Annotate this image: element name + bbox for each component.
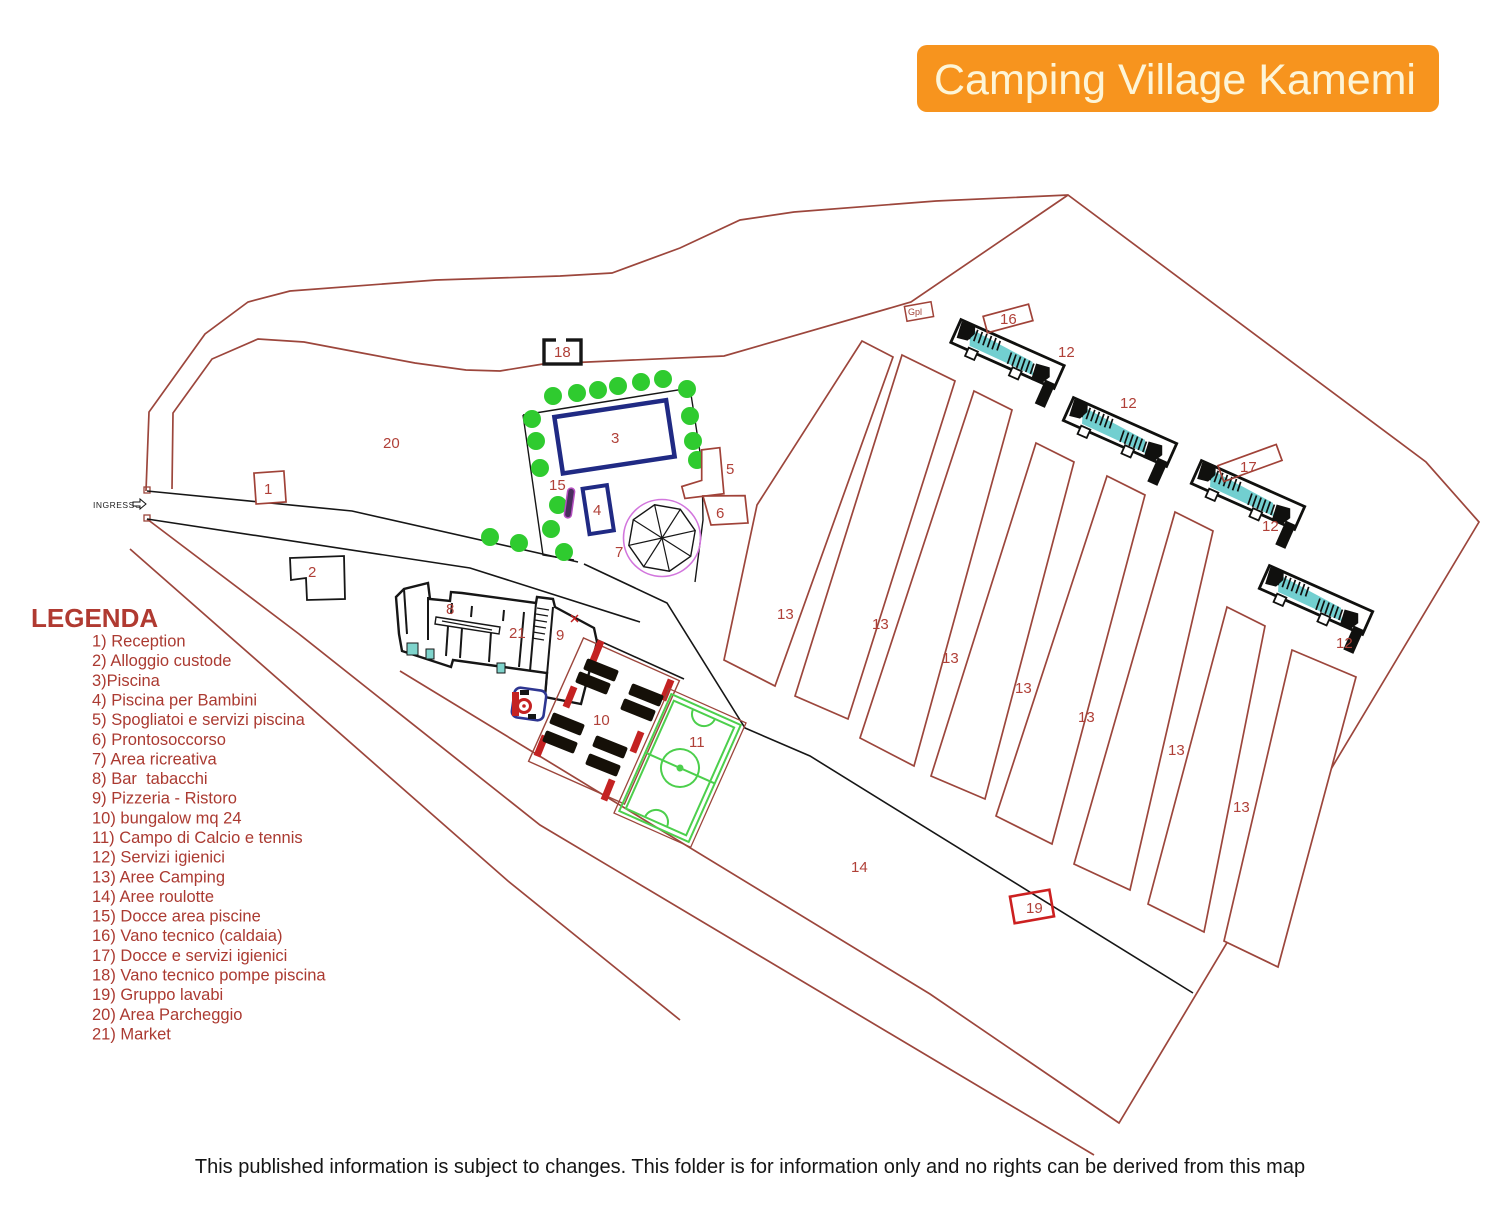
svg-text:21) Market: 21) Market	[92, 1026, 171, 1044]
svg-text:12: 12	[1262, 518, 1279, 535]
svg-text:12) Servizi igienici: 12) Servizi igienici	[92, 849, 225, 867]
svg-text:1: 1	[264, 481, 272, 498]
svg-text:8) Bar tabacchi: 8) Bar tabacchi	[92, 770, 208, 788]
svg-text:17) Docce e servizi igienici: 17) Docce e servizi igienici	[92, 947, 287, 965]
svg-text:This published information is: This published information is subject to…	[195, 1156, 1305, 1178]
svg-text:11: 11	[689, 734, 705, 751]
svg-text:13: 13	[1078, 709, 1095, 726]
svg-text:15: 15	[549, 477, 566, 494]
svg-text:20: 20	[383, 435, 400, 452]
svg-text:7: 7	[615, 544, 623, 561]
svg-text:8: 8	[446, 601, 454, 618]
svg-text:2) Alloggio custode: 2) Alloggio custode	[92, 652, 231, 670]
svg-text:16) Vano tecnico (caldaia): 16) Vano tecnico (caldaia)	[92, 927, 282, 945]
svg-text:21: 21	[509, 625, 526, 642]
svg-text:14: 14	[851, 859, 868, 876]
svg-text:7) Area ricreativa: 7) Area ricreativa	[92, 750, 218, 768]
svg-text:13: 13	[872, 616, 889, 633]
svg-text:17: 17	[1240, 459, 1257, 476]
svg-text:LEGENDA: LEGENDA	[31, 603, 158, 633]
svg-text:12: 12	[1120, 395, 1137, 412]
svg-text:3)Piscina: 3)Piscina	[92, 672, 161, 690]
svg-text:13: 13	[942, 650, 959, 667]
svg-text:5: 5	[726, 461, 734, 478]
svg-text:15) Docce area piscine: 15) Docce area piscine	[92, 908, 261, 926]
svg-text:18) Vano tecnico pompe piscina: 18) Vano tecnico pompe piscina	[92, 967, 326, 985]
svg-text:12: 12	[1058, 344, 1075, 361]
svg-text:3: 3	[611, 430, 619, 447]
svg-text:9: 9	[556, 627, 564, 644]
svg-text:19: 19	[1026, 900, 1043, 917]
svg-text:Camping Village Kamemi: Camping Village Kamemi	[934, 56, 1416, 104]
svg-text:9) Pizzeria - Ristoro: 9) Pizzeria - Ristoro	[92, 790, 237, 808]
svg-text:4: 4	[593, 502, 601, 519]
svg-text:10: 10	[593, 712, 610, 729]
svg-text:5) Spogliatoi e servizi piscin: 5) Spogliatoi e servizi piscina	[92, 711, 306, 729]
svg-text:13: 13	[777, 606, 794, 623]
svg-text:Gpl: Gpl	[908, 307, 922, 317]
svg-text:10) bungalow mq 24: 10) bungalow mq 24	[92, 809, 242, 827]
svg-text:13) Aree Camping: 13) Aree Camping	[92, 868, 225, 886]
svg-text:6: 6	[716, 505, 724, 522]
svg-text:16: 16	[1000, 311, 1017, 328]
svg-text:11) Campo di Calcio e tennis: 11) Campo di Calcio e tennis	[92, 829, 303, 847]
svg-text:20) Area Parcheggio: 20) Area Parcheggio	[92, 1006, 242, 1024]
svg-text:19) Gruppo lavabi: 19) Gruppo lavabi	[92, 986, 223, 1004]
svg-text:13: 13	[1168, 742, 1185, 759]
svg-text:1) Reception: 1) Reception	[92, 633, 186, 651]
svg-text:2: 2	[308, 564, 316, 581]
svg-text:18: 18	[554, 344, 571, 361]
svg-text:13: 13	[1233, 799, 1250, 816]
svg-text:13: 13	[1015, 680, 1032, 697]
svg-text:14) Aree roulotte: 14) Aree roulotte	[92, 888, 214, 906]
svg-text:12: 12	[1336, 635, 1353, 652]
svg-text:4) Piscina per Bambini: 4) Piscina per Bambini	[92, 692, 257, 710]
svg-text:6) Prontosoccorso: 6) Prontosoccorso	[92, 731, 226, 749]
